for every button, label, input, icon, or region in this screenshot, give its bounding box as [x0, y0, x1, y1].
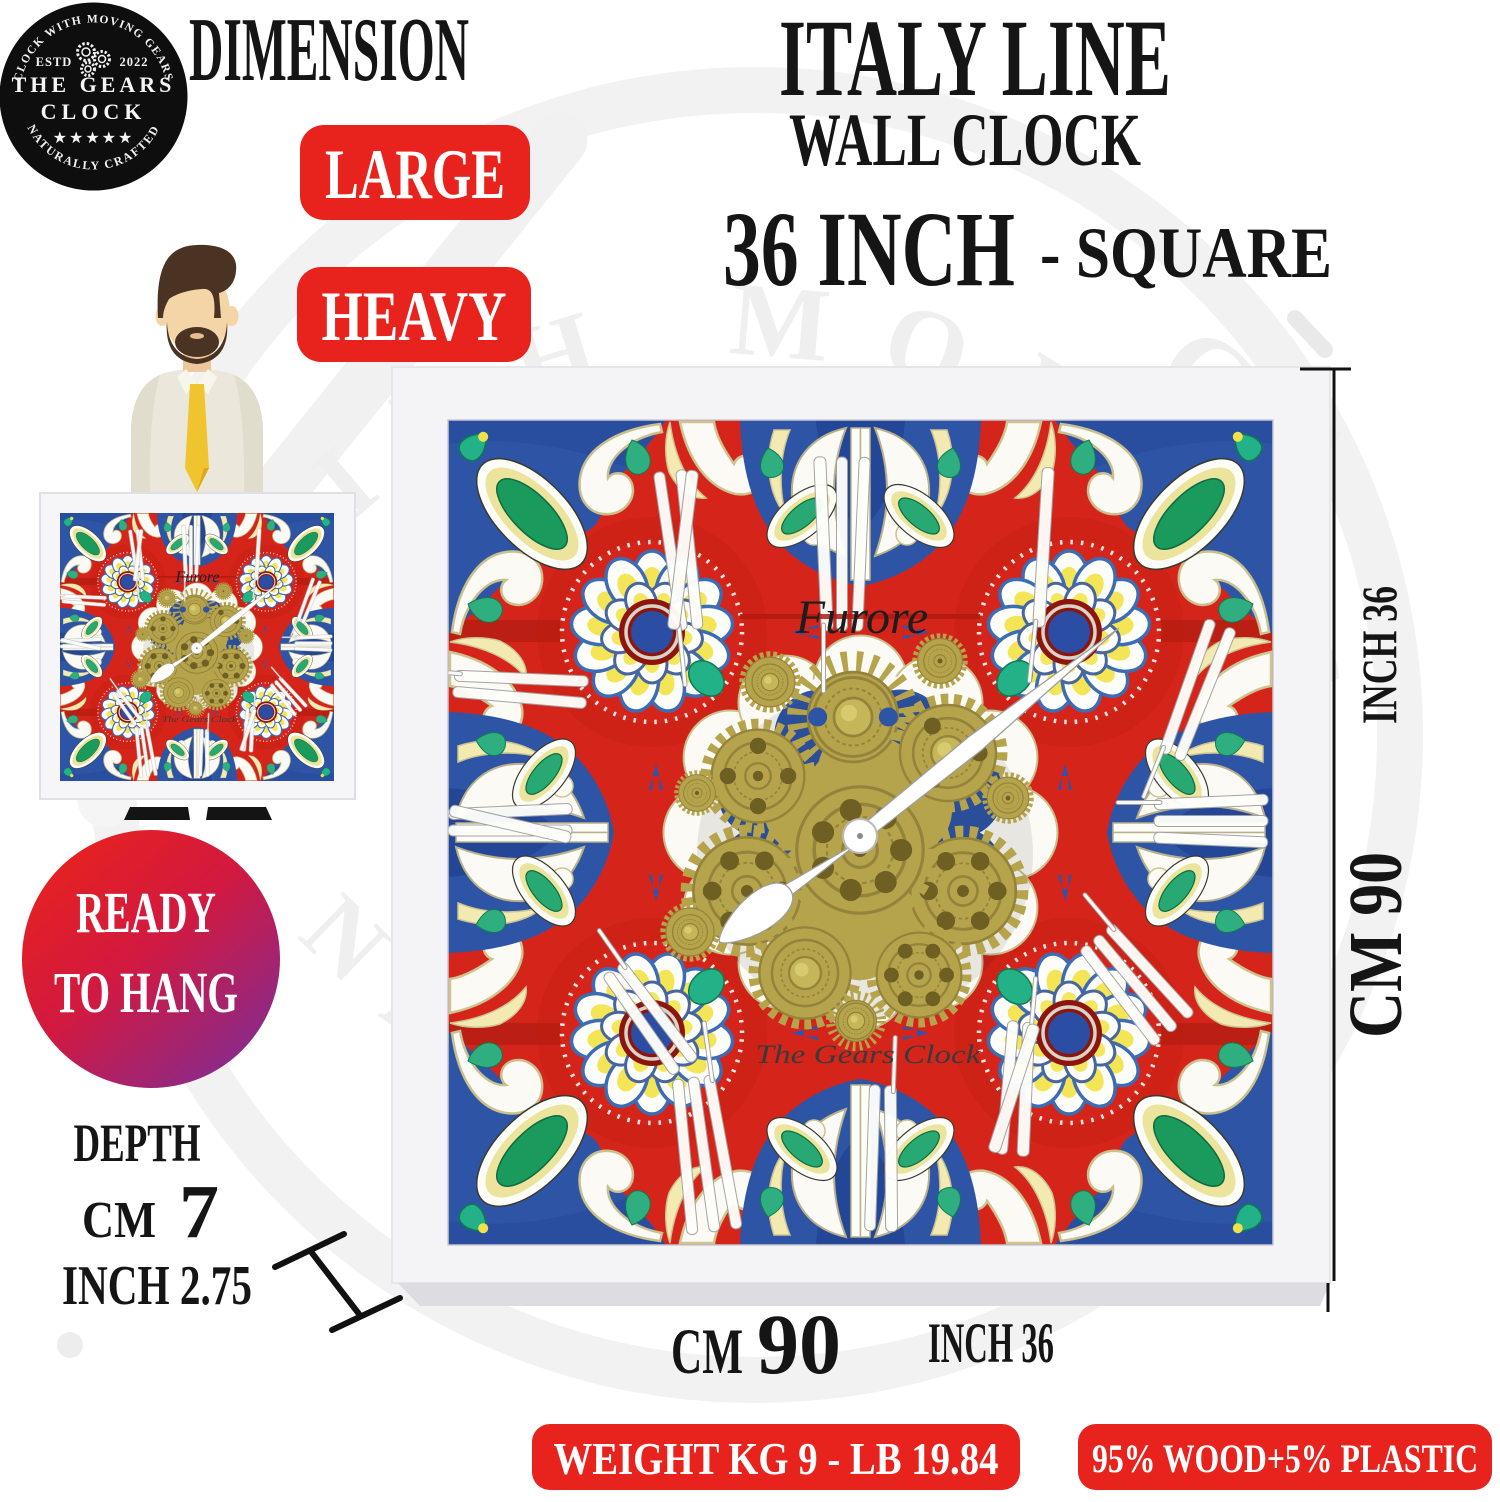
svg-text:CM: CM: [671, 1316, 743, 1388]
svg-text:7: 7: [179, 1170, 219, 1254]
svg-text:★★★★★: ★★★★★: [53, 130, 135, 147]
svg-text:CLOCK: CLOCK: [41, 99, 147, 124]
svg-text:INCH 36: INCH 36: [928, 1313, 1054, 1376]
svg-text:ESTD: ESTD: [36, 55, 73, 69]
svg-text:LARGE: LARGE: [325, 135, 505, 214]
svg-text:36 INCH: 36 INCH: [723, 190, 1015, 309]
svg-text:READY: READY: [76, 880, 216, 945]
svg-text:DEPTH: DEPTH: [74, 1113, 201, 1173]
svg-text:HEAVY: HEAVY: [322, 277, 507, 356]
svg-text:INCH 36: INCH 36: [1351, 586, 1407, 724]
svg-text:TO HANG: TO HANG: [54, 960, 238, 1025]
svg-text:- SQUARE: - SQUARE: [1040, 213, 1332, 293]
svg-text:DIMENSION: DIMENSION: [189, 0, 469, 101]
svg-text:CM: CM: [82, 1192, 156, 1249]
svg-text:95% WOOD+5% PLASTIC: 95% WOOD+5% PLASTIC: [1092, 1436, 1478, 1481]
svg-text:2022: 2022: [120, 55, 149, 69]
svg-text:90: 90: [757, 1296, 841, 1392]
svg-text:CM 90: CM 90: [1334, 852, 1418, 1038]
svg-text:WEIGHT KG 9 - LB 19.84: WEIGHT KG 9 - LB 19.84: [554, 1433, 999, 1484]
svg-text:INCH 2.75: INCH 2.75: [62, 1255, 252, 1317]
svg-text:WALL CLOCK: WALL CLOCK: [789, 97, 1141, 181]
svg-text:THE GEARS: THE GEARS: [12, 72, 176, 97]
